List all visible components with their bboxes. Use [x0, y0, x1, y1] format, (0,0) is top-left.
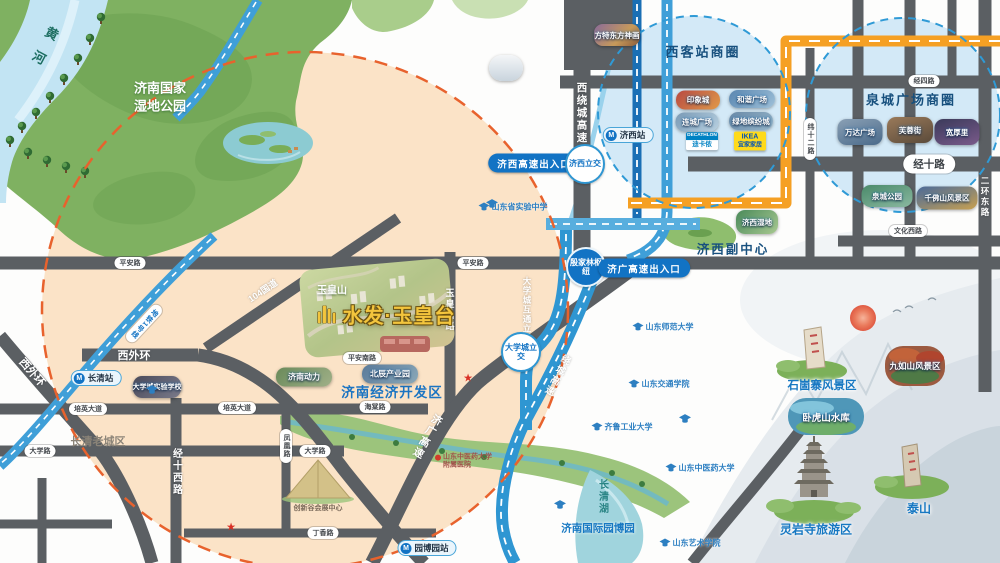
mall-thumbnail-hexie: 和谐广场	[729, 90, 775, 108]
metro-icon: M	[400, 543, 411, 554]
yuanboyuan-metro-station: M园博园站	[397, 540, 456, 556]
star-marker: ★	[226, 523, 236, 534]
road-label-wenhuaxi: 文化西路	[889, 225, 927, 237]
jixi-wetland-thumbnail: 济西湿地	[736, 210, 778, 234]
spot-thumbnail-kuanhouli: 宽厚里	[935, 119, 980, 145]
road-label-weishier: 纬十二路	[804, 118, 816, 160]
west-station-circle-title: 西客站商圈	[665, 42, 740, 61]
fangte-thumbnail: 方特东方神画	[594, 24, 640, 46]
spot-thumbnail-furong: 芙蓉街	[887, 117, 933, 143]
poi-yishu: 山东艺术学院	[660, 538, 721, 549]
jixi-interchange-marker: 济西立交	[565, 144, 605, 184]
wohushan-caption: 卧虎山水库	[802, 410, 850, 424]
station-name: 长清站	[88, 372, 114, 384]
changqing-metro-station: M长清站	[71, 370, 122, 386]
road-label-jingshi: 经十路	[903, 155, 955, 174]
poi-qilu: 齐鲁工业大学	[592, 422, 653, 433]
graduation-cap-icon	[660, 539, 671, 548]
graduation-cap-icon	[633, 323, 644, 332]
road-label-pingannan: 平安南路	[343, 352, 381, 364]
station-name: 济西站	[620, 129, 646, 141]
graduation-cap-icon	[146, 382, 158, 400]
school-photo	[380, 336, 430, 352]
taishan-caption: 泰山	[907, 500, 931, 517]
lingyan-caption: 灵岩寺旅游区	[780, 521, 852, 538]
road-label-haitang: 海棠路	[360, 401, 391, 413]
beichen-thumbnail: 北辰产业园	[362, 365, 418, 384]
ikea-cn: 宜家家居	[734, 142, 766, 151]
decathlon-brand-box: DECATHLON 迪卡侬	[686, 132, 718, 150]
road-label-daxuelu-2: 大学路	[300, 445, 331, 457]
dongli-thumbnail: 济南动力	[276, 368, 332, 387]
changqing-oldtown-label: 长清老城区	[71, 433, 126, 449]
graduation-cap-icon	[592, 423, 603, 432]
graduation-cap-icon	[666, 464, 677, 473]
station-name: 园博园站	[414, 542, 448, 554]
metro-icon: M	[606, 130, 617, 141]
hospital-marker-icon	[435, 455, 441, 461]
daxuecheng-interchange-marker: 大学城立交	[501, 332, 541, 372]
expo-center-caption: 创新谷会展中心	[294, 503, 343, 513]
jixi-metro-station: M济西站	[603, 127, 654, 143]
jiurushan-caption: 九如山风景区	[889, 360, 940, 372]
road-label-dingxiang: 丁香路	[308, 527, 339, 539]
poi-shida: 山东师范大学	[633, 322, 694, 333]
grand-theatre-photo	[489, 55, 523, 81]
road-label-fenghuang: 凤凰路	[280, 429, 292, 463]
road-label-pingan-1: 平安路	[115, 257, 146, 269]
metro-icon: M	[74, 373, 85, 384]
project-title: 水发·玉皇台	[317, 300, 456, 329]
decathlon-logo: DECATHLON	[686, 132, 718, 140]
yuhuangshan-label: 玉皇山	[317, 282, 347, 297]
road-label-jingsi: 经四路	[909, 75, 940, 87]
changqing-lake-label: 长清湖	[595, 479, 610, 515]
graduation-cap-icon	[486, 196, 498, 214]
decathlon-cn: 迪卡侬	[686, 140, 718, 149]
project-name: 水发·玉皇台	[343, 300, 456, 329]
wetland-lake	[223, 122, 313, 164]
wetland-park-label: 济南国家湿地公园	[130, 79, 190, 114]
jingkai-district-label: 济南经济开发区	[341, 381, 443, 401]
shuifa-logo-icon	[317, 305, 339, 323]
graduation-cap-icon	[629, 380, 640, 389]
expo-park-label: 济南国际园博园	[561, 521, 635, 536]
road-label-jingshixi: 经十西路	[169, 448, 184, 496]
location-map: 黄河 济南国家湿地公园 长清湖 济南国际园博园 西绕城高速 二环东路 经十西路 …	[0, 0, 1000, 563]
spot-thumbnail-quanchengpark: 泉城公园	[862, 185, 913, 207]
road-label-peiying-1: 培英大道	[69, 403, 107, 415]
road-label-xiraocheng: 西绕城高速	[575, 82, 590, 145]
sun-illustration	[850, 305, 876, 331]
mall-thumbnail-yinxiangcheng: 印象城	[676, 91, 720, 110]
road-label-xiwaihuan: 西外环	[118, 347, 151, 363]
road-label-peiying-2: 培英大道	[218, 402, 256, 414]
poi-hospital: 山东中医药大学附属医院	[435, 454, 497, 471]
quancheng-circle-title: 泉城广场商圈	[866, 90, 956, 109]
road-label-daxuelu-1: 大学路	[25, 445, 56, 457]
poi-jiaotong: 山东交通学院	[629, 379, 690, 390]
graduation-cap-icon	[554, 497, 566, 515]
jiguang-expressway-gate: 济广高速出入口	[598, 259, 690, 278]
ikea-logo: IKEA	[734, 132, 766, 142]
shiguzhai-caption: 石崮寨风景区	[788, 377, 857, 393]
road-label-pingan-2: 平安路	[458, 257, 489, 269]
poi-zhongyi: 山东中医药大学	[666, 463, 735, 474]
graduation-cap-icon	[679, 411, 691, 429]
spot-thumbnail-wanda: 万达广场	[838, 119, 883, 145]
jixi-subcenter-label: 济西副中心	[697, 239, 770, 258]
road-label-erhuandong: 二环东路	[979, 176, 991, 218]
mall-thumbnail-liancheng: 连城广场	[676, 113, 719, 132]
spot-thumbnail-qianfoshan: 千佛山风景区	[917, 187, 978, 210]
mall-thumbnail-lvdi: 绿地缤纷城	[729, 112, 773, 130]
star-marker: ★	[463, 374, 473, 385]
ikea-brand-box: IKEA 宜家家居	[734, 132, 766, 151]
